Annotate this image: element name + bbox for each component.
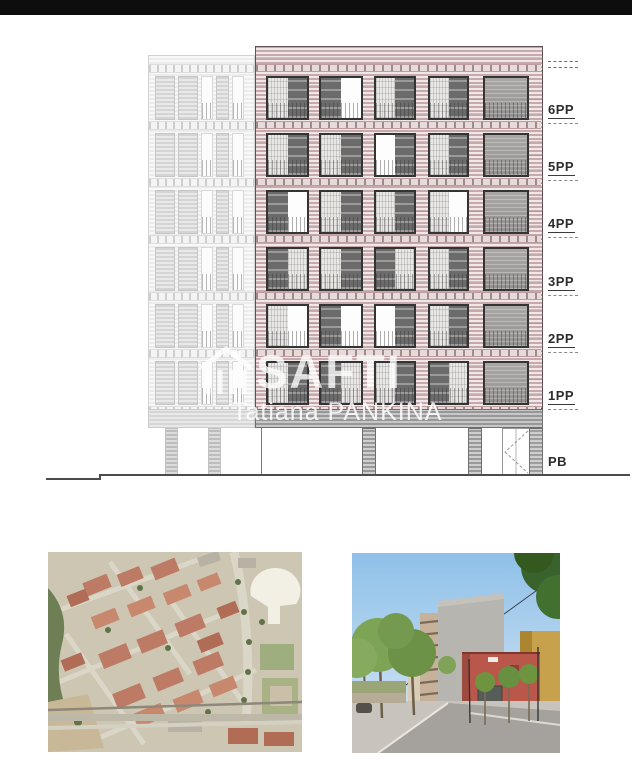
neighbor-window [232, 247, 244, 291]
window [266, 133, 309, 177]
floor-label-text: 5PP [548, 160, 575, 176]
slab-band [256, 292, 541, 300]
neighbor-shutter [178, 76, 198, 120]
window [374, 304, 416, 348]
listing-sheet: 6PP5PP4PP3PP2PP1PPPB SAFTI Tatiana PANKI… [0, 0, 632, 768]
ground-floor-left-edge [261, 428, 262, 475]
neighbor-window [201, 76, 213, 120]
neighbor-shutter [155, 247, 175, 291]
slab-band [256, 349, 541, 357]
neighbor-building-facade [148, 55, 255, 409]
slab-band [256, 235, 541, 243]
neighbor-window [201, 361, 213, 405]
aerial-map-graphic [48, 552, 302, 752]
neighbor-shutter [178, 361, 198, 405]
window [266, 76, 309, 120]
neighbor-shutter [216, 361, 229, 405]
terrace-window [483, 247, 529, 291]
neighbor-shutter [178, 190, 198, 234]
neighbor-shutter [155, 304, 175, 348]
floor-label-5pp: 5PP [548, 160, 584, 181]
window [266, 190, 309, 234]
floor-label-2pp: 2PP [548, 332, 584, 353]
window [374, 133, 416, 177]
neighbor-slab-band [149, 178, 254, 187]
floor-level-dash [548, 123, 578, 124]
terrace-window [483, 190, 529, 234]
door-swing-icon [503, 429, 529, 474]
neighbor-shutter [155, 76, 175, 120]
slab-band [256, 64, 541, 72]
neighbor-shutter [178, 247, 198, 291]
neighbor-shutter [155, 190, 175, 234]
window [266, 247, 309, 291]
neighbor-window [232, 361, 244, 405]
terrace-window [483, 133, 529, 177]
neighbor-shutter [178, 304, 198, 348]
floor-level-dash [548, 295, 578, 296]
floor-label-text: 6PP [548, 103, 575, 119]
ground-line-step [99, 474, 101, 480]
neighbor-slab-band [149, 121, 254, 130]
floor-label-text: PB [548, 455, 575, 470]
window [428, 361, 469, 405]
ground-line-left [46, 478, 100, 480]
ground-floor-door [502, 428, 530, 475]
floor-label-text: 1PP [548, 389, 575, 405]
ground-floor-pier [362, 428, 376, 475]
floor-label-4pp: 4PP [548, 217, 584, 238]
floor-label-text: 4PP [548, 217, 575, 233]
neighbor-window [232, 190, 244, 234]
ground-floor-pier [468, 428, 482, 475]
floor-label-text: 3PP [548, 275, 575, 291]
neighbor-slab-band [149, 349, 254, 358]
neighbor-pier [165, 428, 178, 475]
window [374, 361, 416, 405]
neighbor-window [232, 304, 244, 348]
floor-level-dash [548, 237, 578, 238]
neighbor-shutter [216, 133, 229, 177]
floor-label-3pp: 3PP [548, 275, 584, 296]
neighbor-shutter [178, 133, 198, 177]
floor-level-dash [548, 180, 578, 181]
neighbor-slab-band [149, 235, 254, 244]
slab-band [256, 121, 541, 129]
terrace-window [483, 361, 529, 405]
neighbor-shutter [155, 133, 175, 177]
slab-band [256, 178, 541, 186]
aerial-site-map-photo [48, 552, 302, 752]
floor-label-text: 2PP [548, 332, 575, 348]
neighbor-slab-band [149, 64, 254, 73]
ground-floor-canopy [255, 409, 543, 428]
neighbor-shutter [155, 361, 175, 405]
window [428, 247, 469, 291]
window [374, 76, 416, 120]
street-view-photo [352, 553, 560, 753]
neighbor-shutter [216, 190, 229, 234]
window [319, 76, 363, 120]
roof-level-dash [548, 61, 578, 62]
neighbor-shutter [216, 304, 229, 348]
window [428, 304, 469, 348]
street-view-graphic [352, 553, 560, 753]
window [319, 304, 363, 348]
terrace-window [483, 304, 529, 348]
window [428, 190, 469, 234]
window [374, 190, 416, 234]
neighbor-slab-band [149, 292, 254, 301]
floor-label-6pp: 6PP [548, 103, 584, 124]
neighbor-window [232, 76, 244, 120]
neighbor-shutter [216, 76, 229, 120]
window [266, 304, 309, 348]
main-building-facade [255, 46, 543, 409]
window [374, 247, 416, 291]
neighbor-pier [208, 428, 221, 475]
neighbor-window [201, 190, 213, 234]
window [319, 247, 363, 291]
ground-floor-right-wall [529, 428, 543, 475]
window [428, 76, 469, 120]
neighbor-window [201, 304, 213, 348]
window [319, 361, 363, 405]
ground-line [99, 474, 630, 476]
neighbor-window [201, 247, 213, 291]
terrace-window [483, 76, 529, 120]
top-black-bar [0, 0, 632, 15]
window [319, 133, 363, 177]
window [266, 361, 309, 405]
floor-label-1pp: 1PP [548, 389, 584, 410]
neighbor-shutter [216, 247, 229, 291]
neighbor-window [232, 133, 244, 177]
floor-label-pb: PB [548, 455, 584, 470]
roof-level-dash [548, 67, 578, 68]
neighbor-window [201, 133, 213, 177]
floor-level-dash [548, 352, 578, 353]
neighbor-building-lower-band [148, 409, 255, 428]
floor-level-dash [548, 409, 578, 410]
window [428, 133, 469, 177]
window [319, 190, 363, 234]
